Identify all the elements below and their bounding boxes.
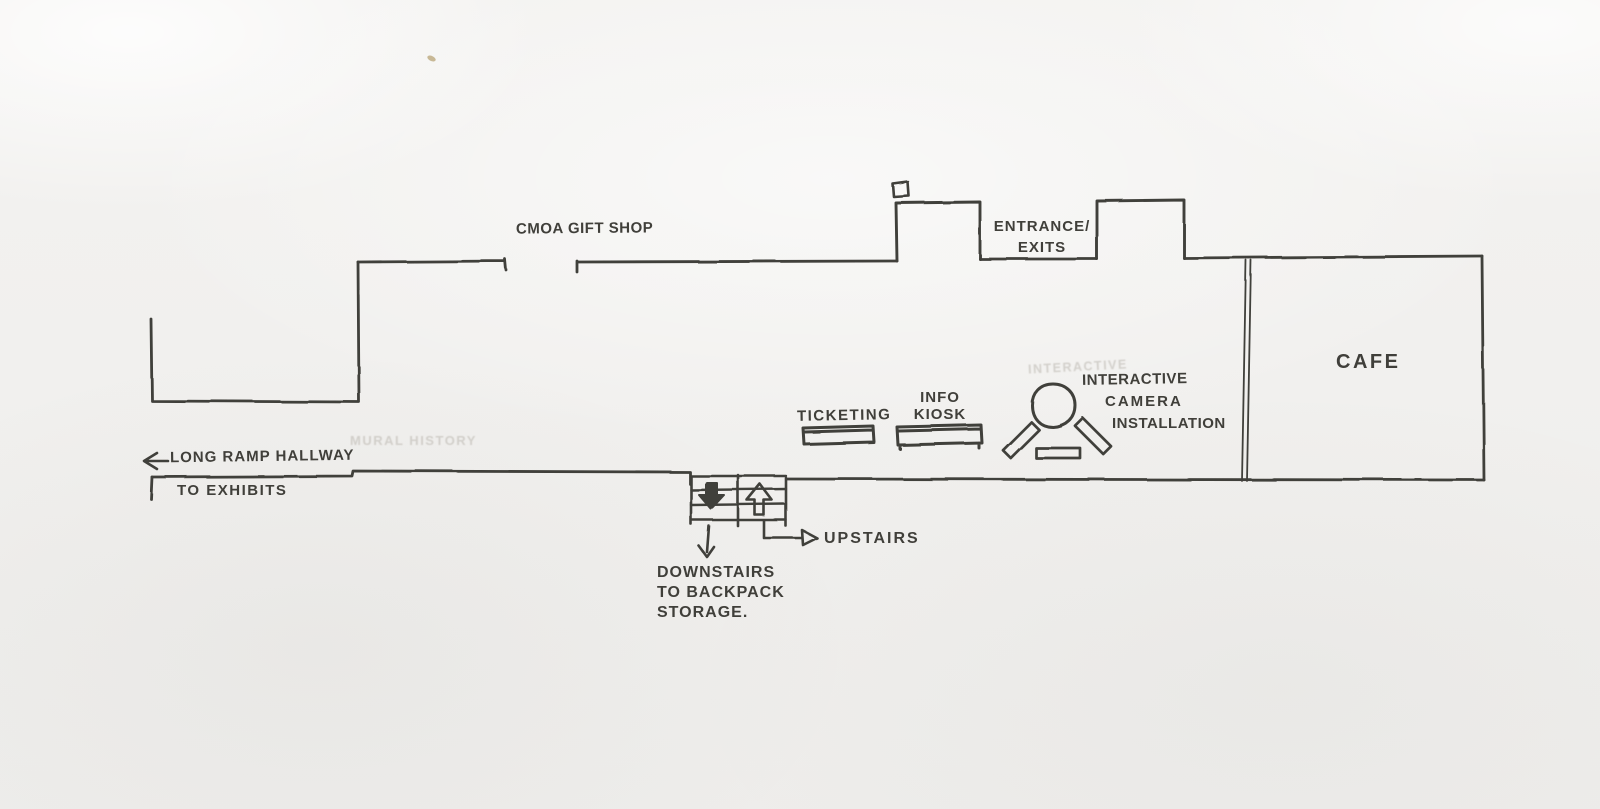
- scanned-floor-plan-sketch: CMOA GIFT SHOP ENTRANCE/ EXITS TICKETING…: [0, 0, 1600, 809]
- wall-left-notch: [151, 262, 359, 402]
- wall-top-right: [1184, 256, 1482, 258]
- label-ticketing: TICKETING: [797, 405, 892, 427]
- ticketing-desk: [803, 426, 874, 444]
- camera-circle: [1032, 384, 1075, 427]
- label-to-exhibits: TO EXHIBITS: [177, 481, 287, 501]
- floor-plan-drawing: [0, 0, 1600, 809]
- entrance-alcove-2: [1097, 200, 1184, 259]
- camera-installation-group: [1003, 384, 1111, 458]
- entrance-alcove-1: [896, 202, 980, 261]
- hallway-corner-bracket: [151, 477, 152, 499]
- upstairs-pointer-icon: [764, 521, 817, 545]
- ramp-left-arrow-icon: [144, 453, 168, 469]
- label-cafe: CAFE: [1336, 352, 1400, 372]
- bench-center: [1036, 448, 1080, 458]
- wall-right: [1482, 256, 1484, 480]
- staircase: [691, 475, 786, 526]
- wall-top-gift-shop-left: [358, 259, 506, 270]
- cafe-partition-wall: [1242, 260, 1251, 481]
- label-gift-shop: CMOA GIFT SHOP: [516, 218, 653, 239]
- wall-top-gift-shop-right: [577, 261, 897, 272]
- ghost-text-left: MURAL HISTORY: [350, 433, 477, 448]
- security-camera-marker-icon: [893, 182, 909, 197]
- label-ramp-hallway: LONG RAMP HALLWAY: [170, 446, 355, 469]
- label-downstairs-storage: DOWNSTAIRS TO BACKPACK STORAGE.: [657, 563, 785, 623]
- label-camera-line-2: CAMERA: [1105, 392, 1183, 412]
- label-upstairs: UPSTAIRS: [824, 529, 920, 549]
- label-camera-line-3: INSTALLATION: [1112, 414, 1226, 434]
- bench-left: [1003, 422, 1039, 458]
- label-info-kiosk: INFO KIOSK: [903, 389, 977, 423]
- info-kiosk-desk: [897, 425, 982, 449]
- label-entrance-exits: ENTRANCE/ EXITS: [986, 216, 1098, 258]
- wall-bottom-right: [787, 479, 1484, 480]
- downstairs-pointer-icon: [699, 526, 714, 557]
